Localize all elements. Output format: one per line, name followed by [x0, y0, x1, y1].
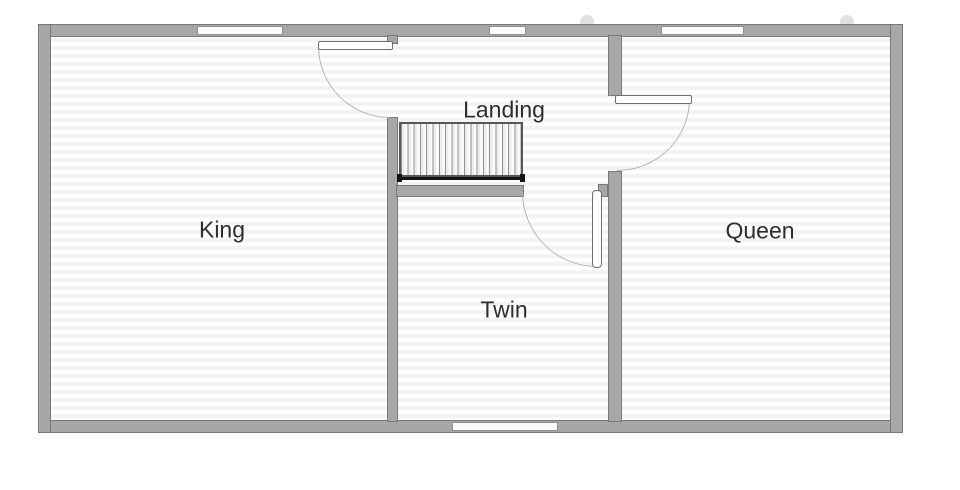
- stair-rail: [399, 177, 523, 180]
- wall-exterior-right: [890, 24, 903, 433]
- door-leaf-twin: [592, 190, 602, 268]
- staircase: [399, 122, 523, 177]
- wall-twin-top: [396, 185, 524, 197]
- stair-rail-end: [397, 174, 402, 182]
- wall-exterior-top: [38, 24, 903, 37]
- wall-queen-divider-top: [608, 35, 622, 96]
- window-twin: [452, 422, 558, 431]
- room-label-twin: Twin: [480, 299, 527, 322]
- room-label-king: King: [199, 219, 245, 242]
- window-landing: [489, 26, 526, 35]
- room-label-queen: Queen: [725, 220, 794, 243]
- window-queen: [661, 26, 744, 35]
- wall-king-divider: [387, 117, 398, 422]
- wall-queen-divider-bottom: [608, 171, 622, 422]
- door-leaf-king: [318, 41, 393, 50]
- wall-exterior-left: [38, 24, 51, 433]
- door-leaf-queen: [615, 95, 692, 104]
- room-label-landing: Landing: [463, 99, 545, 122]
- floor-plan-canvas: King Landing Twin Queen: [0, 0, 960, 490]
- stair-rail-end: [520, 174, 525, 182]
- window-king: [197, 26, 283, 35]
